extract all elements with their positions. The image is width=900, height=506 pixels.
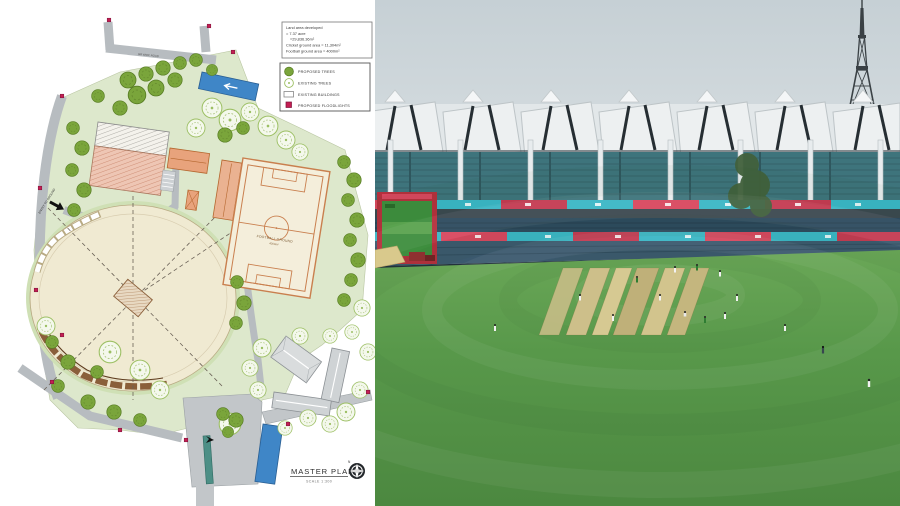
master-plan-pane: 6M WIDE ROAD 6M WIDE ROAD (0, 0, 375, 506)
legend-item-existing-buildings: EXISTING BUILDINGS (284, 92, 340, 98)
stadium-photo-pane (375, 0, 900, 506)
plan-title: MASTER PLAN (291, 467, 355, 476)
svg-text:EXISTING TREES: EXISTING TREES (298, 82, 332, 86)
screenshot-root: 6M WIDE ROAD 6M WIDE ROAD (0, 0, 900, 506)
master-plan-drawing: 6M WIDE ROAD 6M WIDE ROAD (0, 0, 375, 506)
svg-text:EXISTING BUILDINGS: EXISTING BUILDINGS (298, 93, 340, 97)
info-line-3: =29,836.36m² (290, 37, 315, 42)
proposed-tree-swatch (285, 67, 294, 76)
gallery-building (89, 122, 169, 195)
svg-text:PROPOSED TREES: PROPOSED TREES (298, 70, 335, 74)
land-area-info-box: Land area developed = 7.37 acre =29,836.… (282, 22, 372, 58)
parking-bays (160, 170, 176, 192)
stadium-photo (375, 0, 900, 506)
legend-box: PROPOSED TREES EXISTING TREES EXISTING B… (280, 63, 370, 111)
info-line-2: = 7.37 acre (286, 31, 306, 36)
road-stub (196, 484, 214, 506)
info-line-5: Football ground area = 4000m² (286, 49, 340, 54)
plan-scale: SCALE 1:300 (306, 480, 332, 484)
existing-building-swatch (284, 92, 294, 98)
floodlight-swatch (286, 102, 292, 108)
info-line-4: Cricket ground area = 11,304m² (286, 43, 341, 48)
info-line-1: Land area developed (286, 25, 323, 30)
svg-text:PROPOSED FLOODLIGHTS: PROPOSED FLOODLIGHTS (298, 104, 350, 108)
